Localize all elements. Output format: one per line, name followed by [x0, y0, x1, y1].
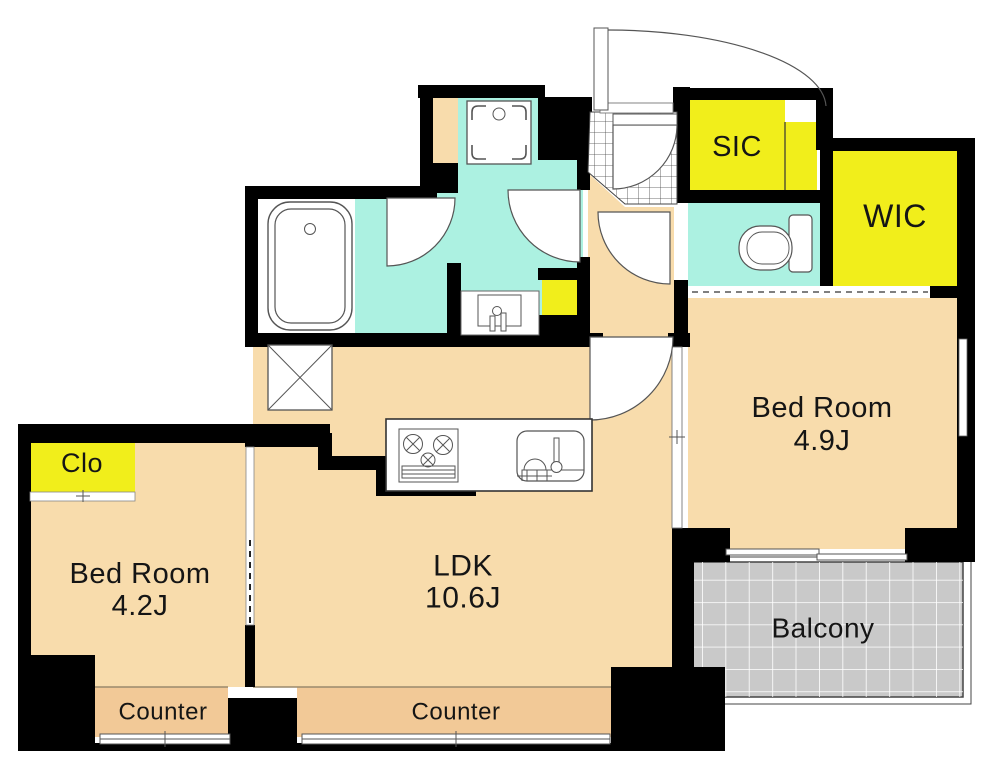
- room-size-bedroom-right: 4.9J: [794, 426, 851, 456]
- room-label-sic: SIC: [712, 132, 762, 162]
- room-label-bedroom-left: Bed Room: [69, 559, 210, 589]
- room-label-ldk: LDK: [433, 550, 493, 582]
- entrance-door: [594, 28, 608, 110]
- room-size-ldk: 10.6J: [425, 582, 501, 614]
- room-label-bedroom-right: Bed Room: [751, 393, 892, 423]
- balcony-window: [726, 549, 819, 555]
- room-label-clo: Clo: [61, 449, 103, 477]
- bathtub: [268, 202, 352, 330]
- room-label-balcony: Balcony: [771, 613, 874, 642]
- counter-label-left: Counter: [119, 699, 208, 724]
- floor-plan: SIC WIC Clo Bed Room 4.9J Bed Room 4.2J …: [0, 0, 990, 768]
- counter-label-right: Counter: [412, 699, 501, 724]
- floor-plan-drawing: [0, 0, 990, 768]
- pipe-space: [268, 345, 332, 410]
- linen-floor: [542, 280, 583, 315]
- gas-stove: [399, 429, 458, 482]
- washbasin: [461, 291, 539, 335]
- room-label-wic: WIC: [863, 200, 927, 234]
- washing-machine-pan: [467, 101, 531, 164]
- room-size-bedroom-left: 4.2J: [112, 591, 169, 621]
- kitchen-counter: [386, 419, 592, 491]
